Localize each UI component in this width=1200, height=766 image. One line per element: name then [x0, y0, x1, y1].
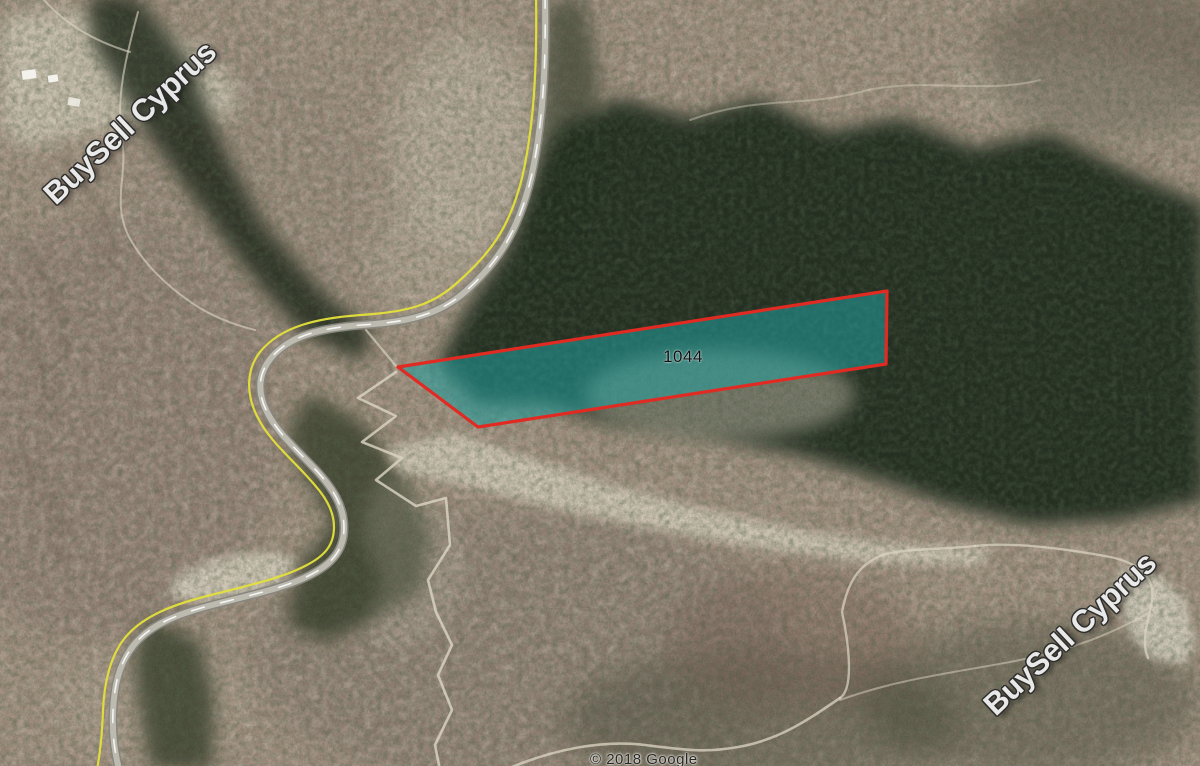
map-canvas[interactable]: 1044 BuySell Cyprus BuySell Cyprus © 201…: [0, 0, 1200, 766]
satellite-imagery: [0, 0, 1200, 766]
